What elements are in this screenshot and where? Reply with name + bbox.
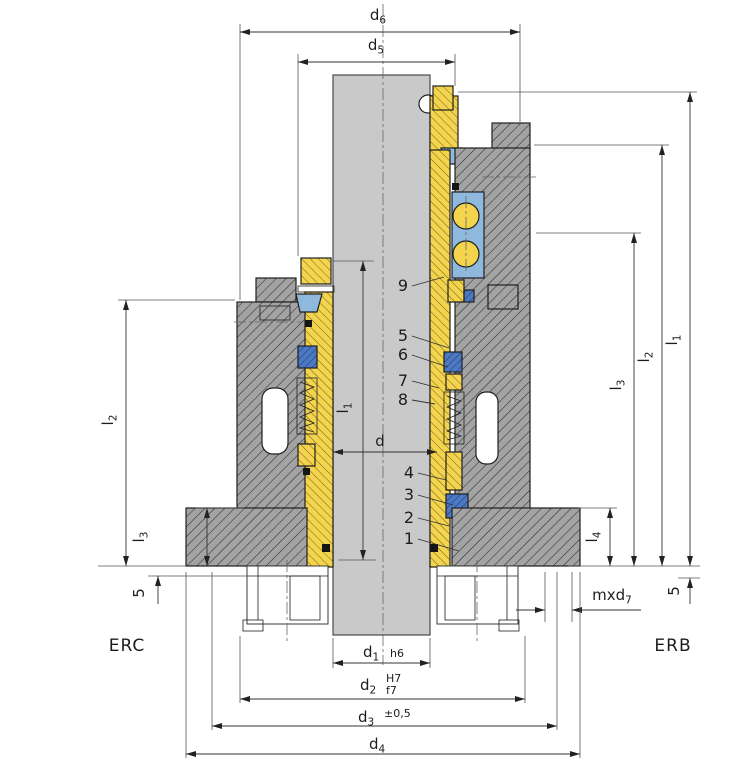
dim-label-l3-right: l3 xyxy=(607,380,628,391)
callout-2: 2 xyxy=(404,508,414,527)
shaft xyxy=(333,75,430,635)
dimension-l2-right: l2 xyxy=(534,145,669,566)
dimension-mxd7: mxd7 xyxy=(516,572,641,622)
erc-gland-step xyxy=(256,278,296,302)
coupling-right xyxy=(437,566,518,624)
dim-label-l4: l4 xyxy=(583,531,604,542)
variant-label-erc: ERC xyxy=(109,636,146,656)
dim-label-d2: d2 xyxy=(360,676,376,697)
dim-fit-d2-shaft: f7 xyxy=(386,684,397,697)
dimension-d1: d1 h6 xyxy=(333,638,430,668)
mounting-plate-right xyxy=(452,508,580,566)
mounting-plate-left xyxy=(186,508,307,566)
dim-label-l2-right: l2 xyxy=(635,352,656,363)
seal-cross-section-drawing: d6 d5 l2 l3 5 l1 l2 xyxy=(0,0,731,768)
erb-o-ring-upper xyxy=(452,183,459,190)
dimension-d2: d2 H7 f7 xyxy=(240,636,525,703)
erc-sleeve-o-ring xyxy=(322,544,330,552)
erb-seal-ring xyxy=(444,352,462,372)
erc-gland-bolt xyxy=(301,258,331,284)
erc-housing-slot xyxy=(262,388,288,454)
dim-tol-d3: ±0,5 xyxy=(384,707,411,720)
dim-label-5-right: 5 xyxy=(665,586,683,596)
callout-6: 6 xyxy=(398,345,408,364)
erc-o-ring-lower xyxy=(303,468,310,475)
erb-seal-assembly xyxy=(419,86,536,567)
dim-label-l2-left: l2 xyxy=(99,415,120,426)
dim-label-d1: d1 xyxy=(363,643,379,664)
dim-label-d: d xyxy=(375,432,385,450)
erb-sleeve-o-ring xyxy=(430,544,438,552)
dim-fit-d1: h6 xyxy=(390,647,404,660)
dimension-l4: l4 xyxy=(578,508,617,566)
erc-drive-collar xyxy=(298,444,315,466)
erb-drive-collar xyxy=(446,374,462,390)
coupling-left xyxy=(247,566,328,624)
erb-housing-step xyxy=(492,123,530,149)
erb-port-boss xyxy=(488,285,518,309)
variant-label-erb: ERB xyxy=(654,636,691,656)
callout-9: 9 xyxy=(398,276,408,295)
callout-3: 3 xyxy=(404,485,414,504)
erb-sleeve-collar xyxy=(446,452,462,490)
dim-label-d3: d3 xyxy=(358,708,374,729)
dimension-5-left: 5 xyxy=(130,576,256,604)
erb-retainer xyxy=(448,280,464,302)
callout-7: 7 xyxy=(398,371,408,390)
erc-elastomer-bellows xyxy=(296,294,322,312)
dim-label-l1-right: l1 xyxy=(663,335,684,346)
seal-drawing-page: d6 d5 l2 l3 5 l1 l2 xyxy=(0,0,731,768)
erb-spacer-blue xyxy=(464,290,474,302)
erb-gland-bolt xyxy=(433,86,453,110)
dim-label-d6: d6 xyxy=(370,6,387,27)
erc-bolt-washer xyxy=(298,286,334,292)
callout-1: 1 xyxy=(404,529,414,548)
erc-seal-ring xyxy=(298,346,317,368)
dim-label-l3-left: l3 xyxy=(130,532,151,543)
dimension-5-right: 5 xyxy=(665,578,700,604)
erb-housing-slot xyxy=(476,392,498,464)
dim-label-5-left: 5 xyxy=(130,588,148,598)
callout-4: 4 xyxy=(404,463,414,482)
erc-shaft-sleeve xyxy=(305,292,333,567)
dim-label-mxd7: mxd7 xyxy=(592,586,632,607)
dim-label-d5: d5 xyxy=(368,36,384,57)
erc-o-ring-upper xyxy=(305,320,312,327)
callout-8: 8 xyxy=(398,390,408,409)
callout-5: 5 xyxy=(398,326,408,345)
dim-label-d4: d4 xyxy=(369,735,386,756)
